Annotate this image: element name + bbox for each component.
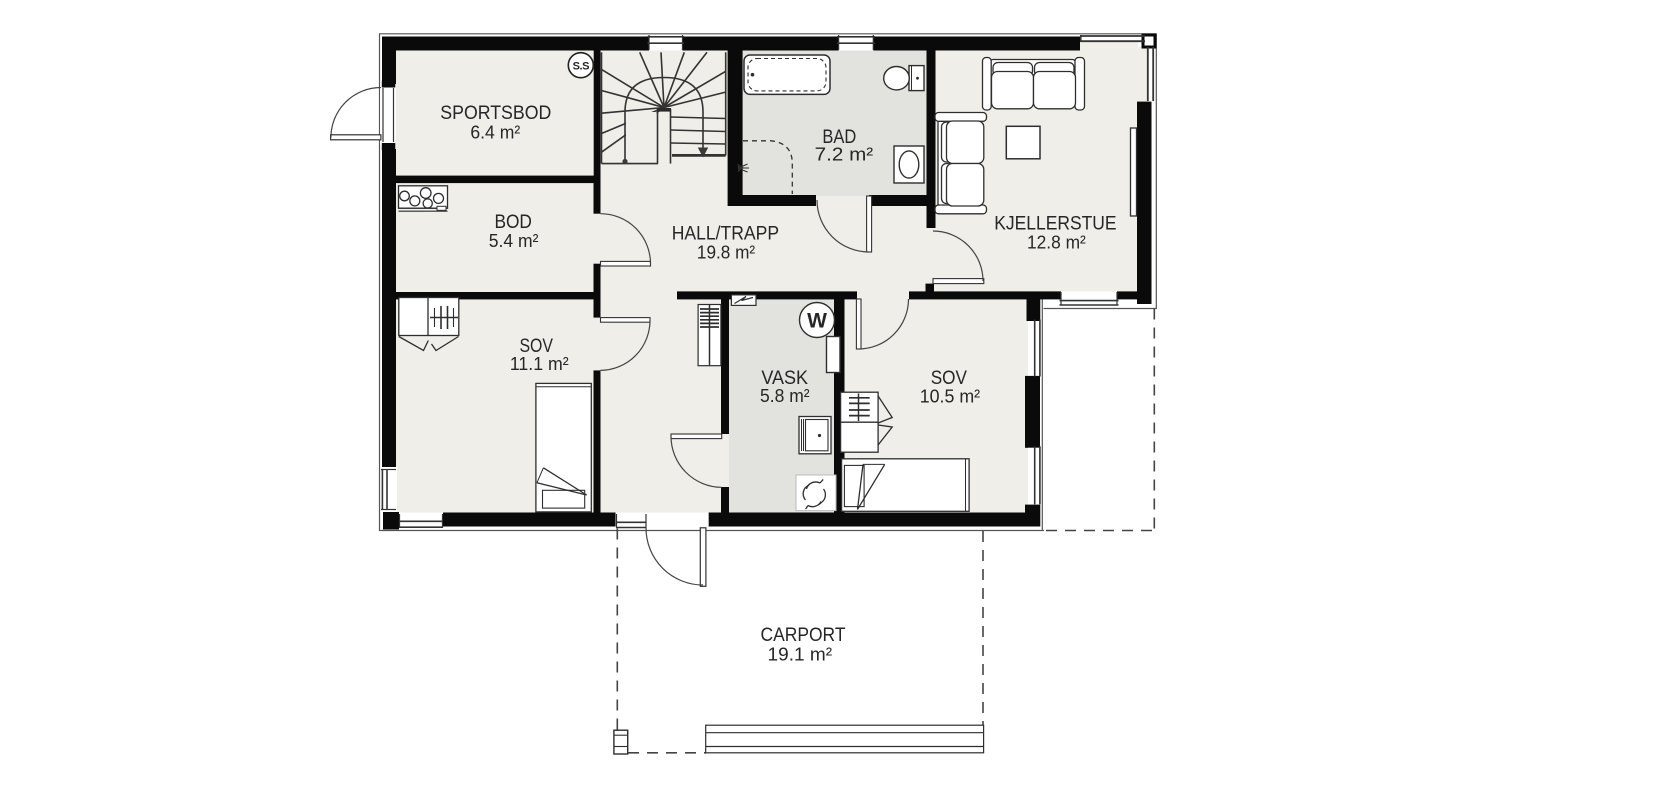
svg-text:5.8 m²: 5.8 m² (760, 385, 810, 406)
svg-text:11.1 m²: 11.1 m² (510, 353, 569, 374)
svg-text:7.2 m²: 7.2 m² (815, 143, 874, 164)
svg-text:W: W (807, 310, 827, 333)
svg-text:19.1 m²: 19.1 m² (768, 644, 833, 665)
svg-text:S.S: S.S (573, 61, 589, 73)
svg-text:12.8 m²: 12.8 m² (1027, 231, 1086, 252)
svg-text:19.8 m²: 19.8 m² (697, 242, 755, 263)
svg-text:5.4 m²: 5.4 m² (489, 230, 539, 251)
svg-text:6.4 m²: 6.4 m² (470, 121, 520, 142)
svg-text:10.5 m²: 10.5 m² (920, 385, 980, 406)
